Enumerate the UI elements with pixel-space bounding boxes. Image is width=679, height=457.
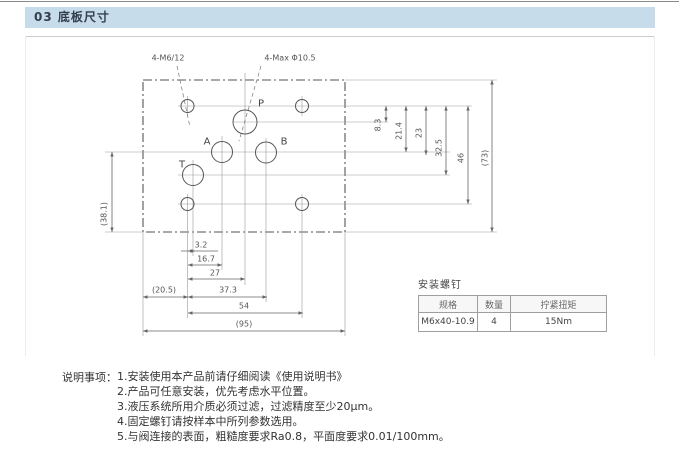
screw-spec-value: M6x40-10.9	[419, 313, 478, 332]
plate-outline	[143, 80, 345, 232]
note-item-1: 1.安装使用本产品前请仔细阅读《使用说明书》	[117, 369, 450, 384]
dim-95: (95)	[236, 320, 252, 329]
port-label-a: A	[204, 137, 211, 148]
screw-table-data-row: M6x40-10.9 4 15Nm	[419, 313, 607, 332]
callout-port-size: 4-Max Φ10.5	[264, 54, 315, 63]
dim-16-7: 16.7	[197, 255, 215, 264]
screw-table-header-row: 规格 数量 拧紧扭矩	[419, 296, 607, 313]
screw-table-title: 安装螺钉	[418, 276, 607, 291]
callout-thread-holes: 4-M6/12	[152, 54, 185, 63]
dim-54: 54	[239, 302, 249, 311]
notes-label: 说明事项：	[62, 369, 117, 385]
dim-23: 23	[415, 128, 424, 138]
port-label-b: B	[281, 137, 288, 148]
screw-table-header-qty: 数量	[478, 296, 511, 313]
catalog-page: 03 底板尺寸	[0, 0, 679, 457]
dim-32-5: 32.5	[435, 139, 444, 157]
screw-table-block: 安装螺钉 规格 数量 拧紧扭矩 M6x40-10.9 4 15Nm	[418, 276, 607, 332]
dim-46: 46	[457, 153, 466, 163]
dim-20-5: (20.5)	[152, 286, 176, 295]
dim-3-2: 3.2	[195, 241, 208, 250]
port-label-p: P	[258, 99, 264, 110]
screw-table-header-spec: 规格	[419, 296, 478, 313]
note-item-3: 3.液压系统所用介质必须过滤，过滤精度至少20μm。	[117, 399, 450, 414]
screw-table: 规格 数量 拧紧扭矩 M6x40-10.9 4 15Nm	[418, 295, 607, 332]
note-item-4: 4.固定螺钉请按样本中所列参数选用。	[117, 414, 450, 429]
dim-37-3: 37.3	[219, 286, 237, 295]
dim-38-1: (38.1)	[100, 202, 109, 226]
note-item-2: 2.产品可任意安装，优先考虑水平位置。	[117, 384, 450, 399]
dim-8-3: 8.3	[374, 119, 383, 132]
dim-21-4: 21.4	[395, 122, 404, 140]
dim-73: (73)	[481, 150, 490, 166]
notes-list: 1.安装使用本产品前请仔细阅读《使用说明书》 2.产品可任意安装，优先考虑水平位…	[117, 369, 450, 444]
callout-leaders	[177, 66, 261, 141]
screw-table-header-torque: 拧紧扭矩	[511, 296, 607, 313]
note-item-5: 5.与阀连接的表面，粗糙度要求Ra0.8，平面度要求0.01/100mm。	[117, 429, 450, 444]
screw-torque-value: 15Nm	[511, 313, 607, 332]
port-label-t: T	[179, 160, 185, 171]
screw-qty-value: 4	[478, 313, 511, 332]
dim-27: 27	[210, 269, 220, 278]
